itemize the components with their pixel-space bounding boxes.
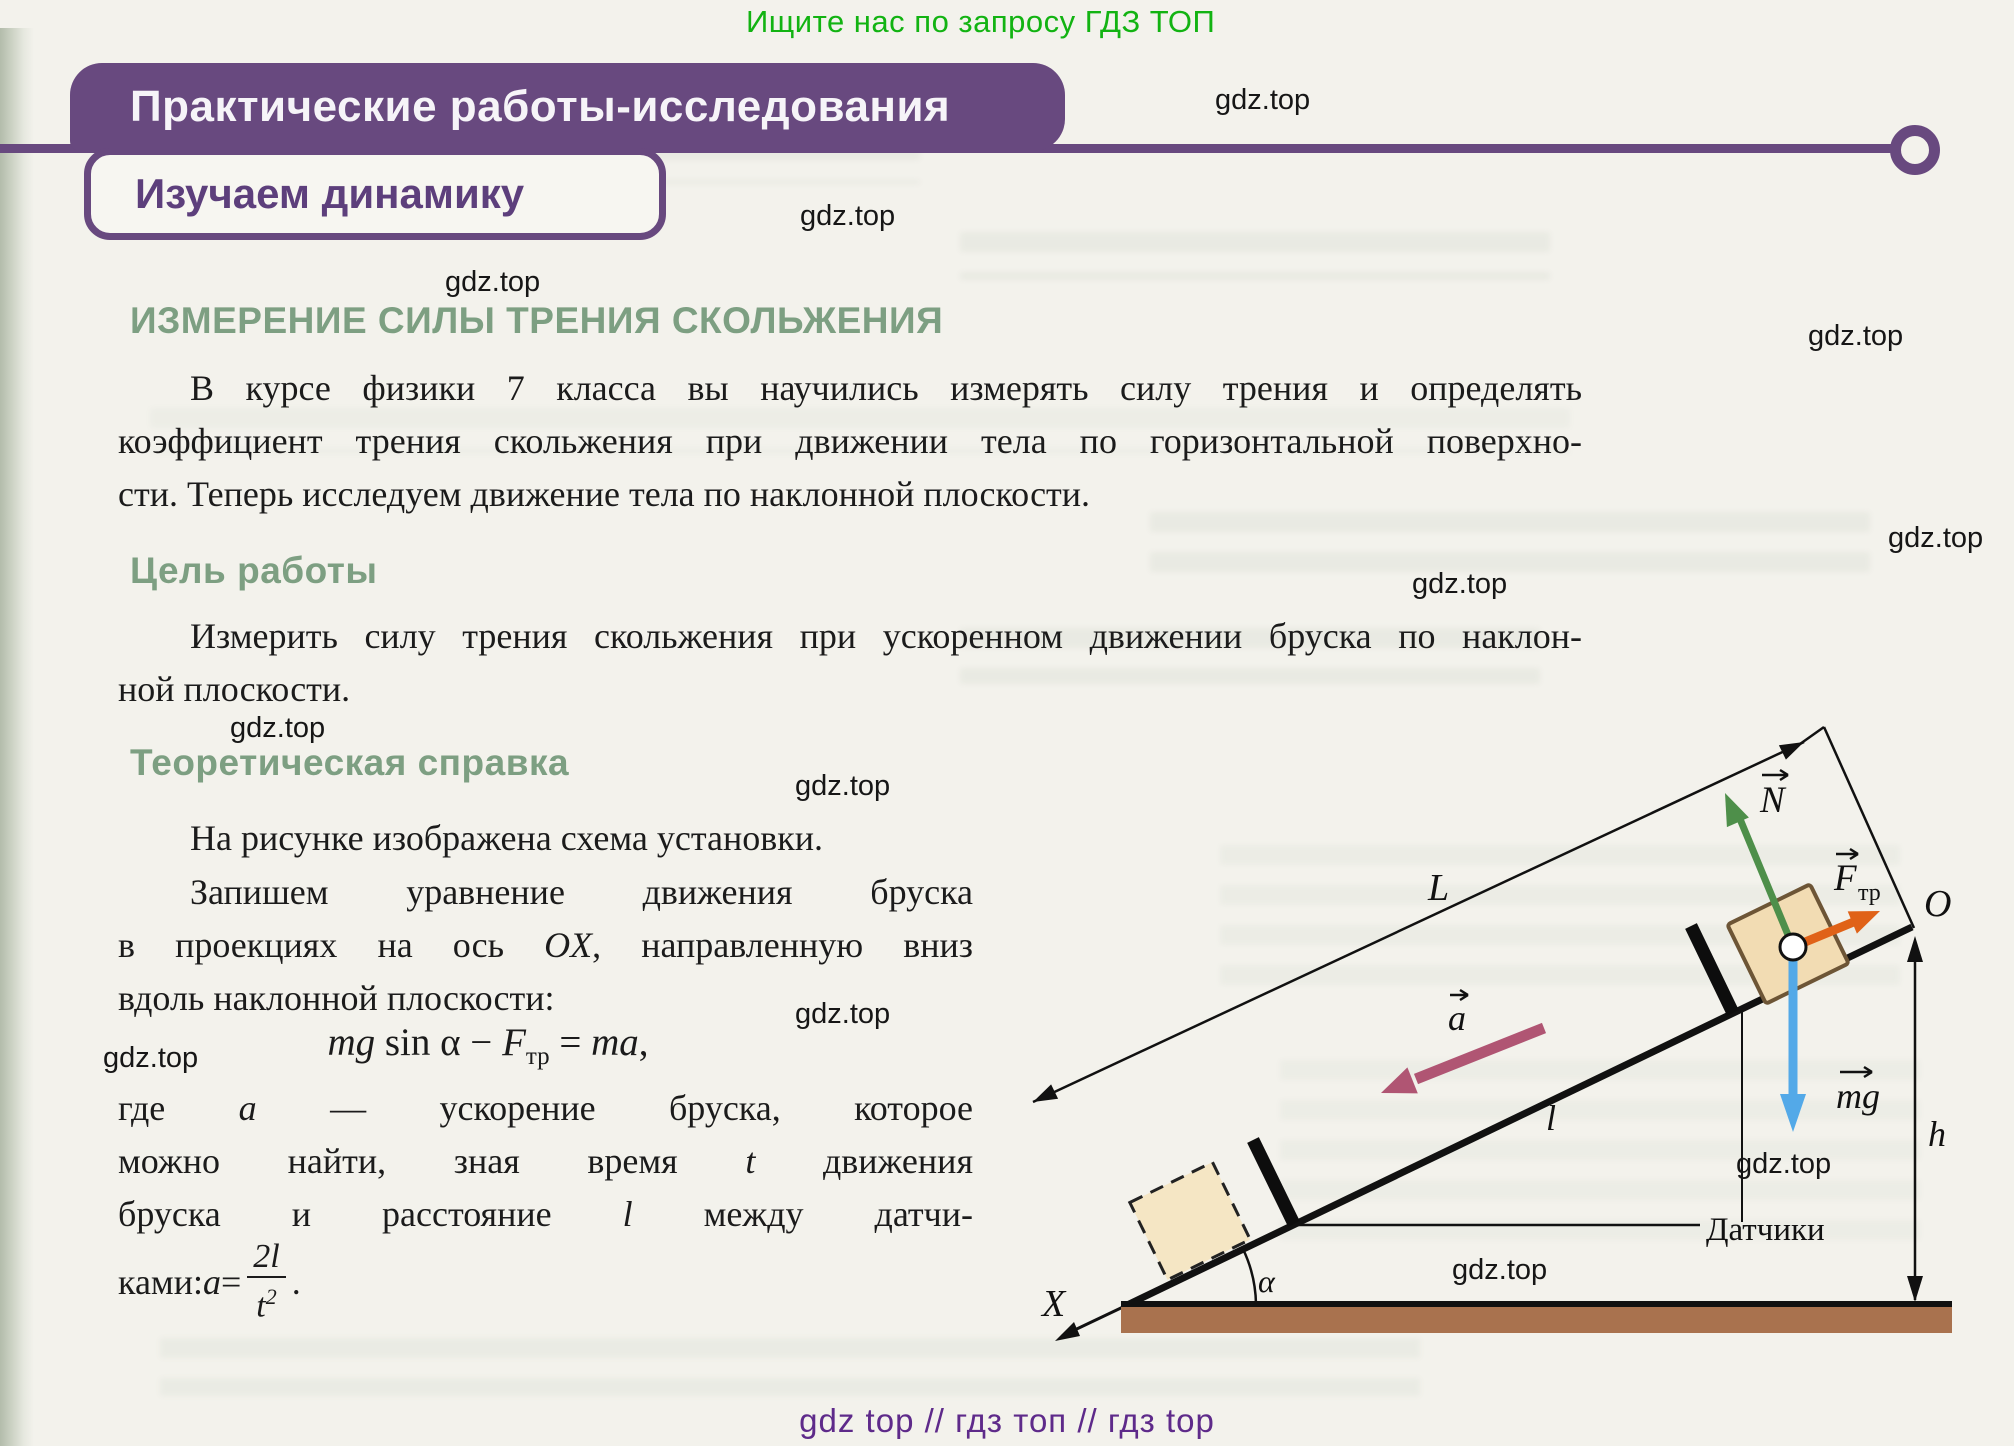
motion-equation: mg sin α − Fтр = ma,	[118, 1020, 858, 1071]
intro-paragraph: В курсе физики 7 класса вы научились изм…	[118, 362, 1582, 521]
topic-banner-label: Изучаем динамику	[91, 170, 524, 218]
svg-text:тр: тр	[1858, 880, 1881, 906]
text-run: =	[221, 1256, 241, 1309]
goal-heading: Цель работы	[130, 550, 378, 592]
section-banner: Практические работы-исследования	[70, 63, 1065, 151]
ground	[1121, 1304, 1952, 1333]
watermark: gdz.top	[103, 1042, 198, 1075]
text-run: бруска и расстояние	[118, 1194, 623, 1234]
watermark: gdz.top	[1808, 320, 1903, 353]
scanned-textbook-page: Ищите нас по запросу ГДЗ ТОП Практически…	[0, 0, 2014, 1446]
acceleration-fraction: 2lt2	[247, 1238, 285, 1325]
watermark: gdz.top	[230, 712, 325, 745]
theory-line: где a — ускорение бруска, которое	[118, 1082, 973, 1135]
text-run: в проекциях на ось	[118, 925, 544, 965]
text-run: ками:	[118, 1256, 203, 1309]
promo-text: Ищите нас по запросу ГДЗ ТОП	[746, 4, 1215, 40]
page-title: ИЗМЕРЕНИЕ СИЛЫ ТРЕНИЯ СКОЛЬЖЕНИЯ	[130, 300, 943, 342]
var-l: l	[623, 1194, 633, 1234]
svg-text:N: N	[1759, 780, 1787, 821]
height-dimension-line	[1907, 936, 1923, 1302]
var-t: t	[256, 1288, 265, 1325]
theory-line-fraction: ками: a = 2lt2.	[118, 1241, 973, 1323]
page-edge-shadow	[0, 28, 34, 1446]
length-label: L	[1427, 867, 1449, 909]
gravity-label: mg	[1836, 1067, 1880, 1116]
theory-line: можно найти, зная время t движения	[118, 1135, 973, 1188]
footer-watermark: gdz top // гдз топ // гдз top	[0, 1402, 2014, 1440]
equals-sign: =	[550, 1021, 592, 1064]
theory-line: Запишем уравнение движения бруска	[118, 866, 973, 919]
svg-text:mg: mg	[1836, 1076, 1880, 1116]
watermark: gdz.top	[1736, 1148, 1831, 1181]
theory-line: бруска и расстояние l между датчи-	[118, 1188, 973, 1241]
text-run: .	[292, 1256, 301, 1309]
svg-text:F: F	[1833, 858, 1857, 899]
angle-arc	[1243, 1249, 1256, 1304]
var-ox: OX	[544, 925, 592, 965]
sensors-label: Датчики	[1706, 1212, 1825, 1248]
watermark: gdz.top	[800, 200, 895, 233]
force-origin-point	[1780, 934, 1806, 960]
intro-line: В курсе физики 7 класса вы научились изм…	[118, 362, 1582, 415]
text-run: где	[118, 1088, 239, 1128]
text-run: движения	[755, 1141, 973, 1181]
goal-line: Измерить силу трения скольжения при уско…	[118, 610, 1582, 663]
fraction-numerator: 2l	[247, 1238, 285, 1278]
exponent: 2	[266, 1284, 277, 1309]
text-run: между датчи-	[633, 1194, 973, 1234]
var-a: a	[239, 1088, 257, 1128]
fraction-denominator: t2	[247, 1278, 285, 1325]
sin-term: sin α −	[375, 1021, 502, 1064]
var-t: t	[745, 1141, 755, 1181]
height-label: h	[1928, 1114, 1946, 1154]
svg-text:a: a	[1448, 998, 1466, 1038]
watermark: gdz.top	[1888, 522, 1983, 555]
angle-label: α	[1258, 1263, 1276, 1299]
bleedthrough-artifact	[1150, 512, 1870, 574]
theory-heading: Теоретическая справка	[130, 742, 569, 784]
watermark: gdz.top	[445, 266, 540, 299]
distance-label: l	[1546, 1098, 1556, 1138]
watermark: gdz.top	[1412, 568, 1507, 601]
var-f: F	[502, 1021, 526, 1064]
comma: ,	[639, 1021, 649, 1064]
friction-subscript: тр	[526, 1043, 550, 1070]
upper-sensor	[1691, 926, 1733, 1013]
origin-label: O	[1924, 883, 1951, 925]
watermark: gdz.top	[795, 998, 890, 1031]
axis-label: X	[1040, 1283, 1067, 1325]
text-run: можно найти, зная время	[118, 1141, 745, 1181]
watermark: gdz.top	[1452, 1254, 1547, 1287]
var-a: a	[203, 1256, 221, 1309]
theory-paragraph-1: На рисунке изображена схема установки.	[118, 812, 973, 865]
intro-line: сти. Теперь исследуем движение тела по н…	[118, 468, 1582, 521]
watermark: gdz.top	[795, 770, 890, 803]
intro-line: коэффициент трения скольжения при движен…	[118, 415, 1582, 468]
watermark: gdz.top	[1215, 84, 1310, 117]
friction-force-label: F тр	[1833, 849, 1881, 906]
text-run: , направленную вниз	[592, 925, 973, 965]
header-rule-ring	[1890, 125, 1940, 175]
section-banner-label: Практические работы-исследования	[70, 82, 950, 132]
text-run: — ускорение бруска, которое	[257, 1088, 973, 1128]
theory-line: в проекциях на ось OX, направленную вниз	[118, 919, 973, 972]
bleedthrough-artifact	[960, 232, 1550, 280]
lower-sensor	[1253, 1140, 1294, 1224]
topic-banner: Изучаем динамику	[84, 148, 666, 240]
theory-line: На рисунке изображена схема установки.	[118, 812, 973, 865]
theory-paragraph-3: где a — ускорение бруска, которое можно …	[118, 1082, 973, 1323]
var-ma: ma	[591, 1021, 639, 1064]
normal-force-label: N	[1759, 770, 1788, 821]
acceleration-label: a	[1448, 990, 1468, 1038]
var-mg: mg	[327, 1021, 375, 1064]
block-start-position	[1130, 1162, 1250, 1280]
